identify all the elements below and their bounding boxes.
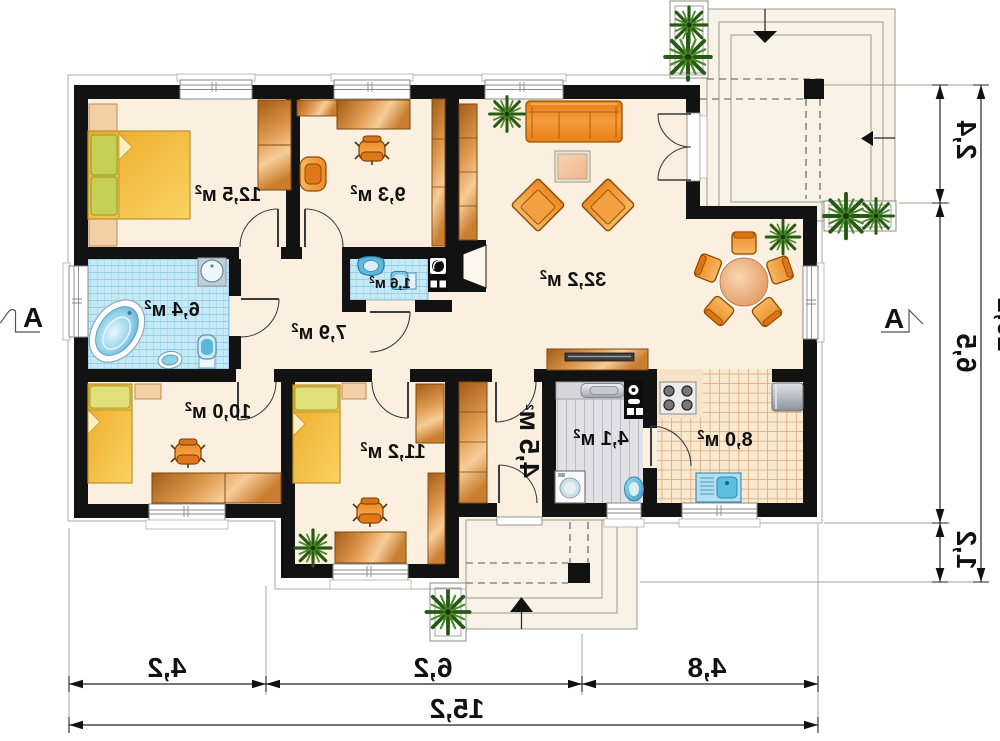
svg-text:10,1: 10,1 xyxy=(992,298,1000,353)
svg-text:A: A xyxy=(23,302,43,333)
svg-text:1,6 м2: 1,6 м2 xyxy=(369,275,411,292)
svg-text:12,5 м2: 12,5 м2 xyxy=(195,182,262,206)
svg-text:15,2: 15,2 xyxy=(430,693,485,724)
svg-text:32,2 м2: 32,2 м2 xyxy=(540,267,607,291)
svg-text:A: A xyxy=(884,303,904,334)
svg-text:10,0 м2: 10,0 м2 xyxy=(185,399,252,423)
svg-text:4,1 м2: 4,1 м2 xyxy=(573,426,628,450)
svg-text:4,5 м2: 4,5 м2 xyxy=(514,404,545,478)
svg-text:2,4: 2,4 xyxy=(951,120,982,159)
svg-text:6,2: 6,2 xyxy=(414,652,453,683)
svg-text:7,9 м2: 7,9 м2 xyxy=(291,320,346,344)
svg-text:6,4 м2: 6,4 м2 xyxy=(144,297,199,321)
svg-text:6,5: 6,5 xyxy=(951,334,982,373)
svg-text:9,3 м2: 9,3 м2 xyxy=(350,182,405,206)
svg-text:1,2: 1,2 xyxy=(951,531,982,570)
svg-text:4,2: 4,2 xyxy=(148,652,187,683)
svg-text:4,8: 4,8 xyxy=(688,652,727,683)
svg-text:11,2 м2: 11,2 м2 xyxy=(360,439,425,463)
svg-text:8,0 м2: 8,0 м2 xyxy=(697,427,752,451)
